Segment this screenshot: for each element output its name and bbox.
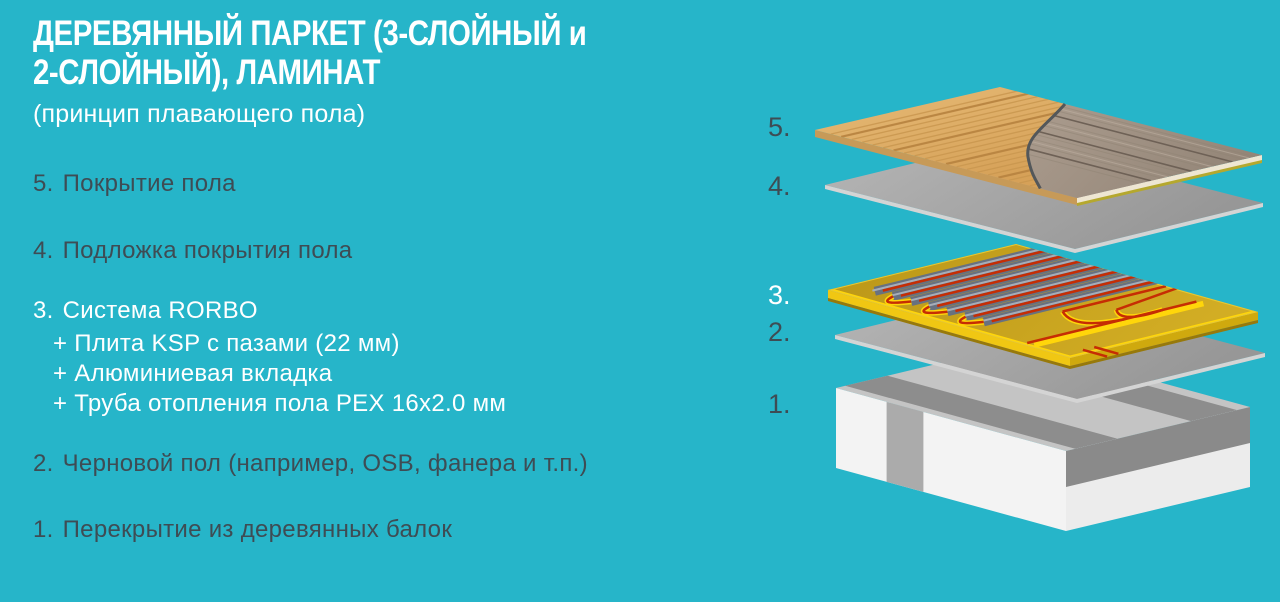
floor-diagram — [790, 82, 1280, 602]
item-label: Черновой пол (например, OSB, фанера и т.… — [63, 450, 588, 477]
title-line-1: ДЕРЕВЯННЫЙ ПАРКЕТ (3-СЛОЙНЫЙ и — [33, 14, 586, 53]
page-background: ДЕРЕВЯННЫЙ ПАРКЕТ (3-СЛОЙНЫЙ и 2-СЛОЙНЫЙ… — [0, 0, 1280, 602]
list-item-5: 5.Покрытие пола — [33, 170, 236, 198]
sub-item-pex-pipe: + Труба отопления пола PEX 16x2.0 мм — [53, 390, 506, 418]
item-label: Система RORBO — [63, 297, 258, 324]
item-number: 3. — [33, 297, 54, 324]
item-label: Подложка покрытия пола — [63, 237, 353, 264]
item-number: 2. — [33, 450, 54, 477]
diagram-label-1: 1. — [768, 389, 791, 420]
diagram-label-3: 3. — [768, 280, 791, 311]
diagram-label-2: 2. — [768, 317, 791, 348]
list-item-1: 1.Перекрытие из деревянных балок — [33, 516, 452, 544]
item-label: Перекрытие из деревянных балок — [63, 516, 453, 543]
sub-item-aluminium-insert: + Алюминиевая вкладка — [53, 360, 332, 388]
list-item-2: 2.Черновой пол (например, OSB, фанера и … — [33, 450, 588, 478]
subtitle: (принцип плавающего пола) — [33, 100, 365, 129]
list-item-3: 3.Система RORBO — [33, 297, 258, 325]
diagram-label-4: 4. — [768, 171, 791, 202]
item-label: Покрытие пола — [63, 170, 236, 197]
title-line-2: 2-СЛОЙНЫЙ), ЛАМИНАТ — [33, 53, 586, 92]
page-title: ДЕРЕВЯННЫЙ ПАРКЕТ (3-СЛОЙНЫЙ и 2-СЛОЙНЫЙ… — [33, 14, 586, 92]
sub-item-ksp-board: + Плита KSP с пазами (22 мм) — [53, 330, 400, 358]
diagram-label-5: 5. — [768, 112, 791, 143]
list-item-4: 4.Подложка покрытия пола — [33, 237, 352, 265]
item-number: 1. — [33, 516, 54, 543]
item-number: 5. — [33, 170, 54, 197]
item-number: 4. — [33, 237, 54, 264]
